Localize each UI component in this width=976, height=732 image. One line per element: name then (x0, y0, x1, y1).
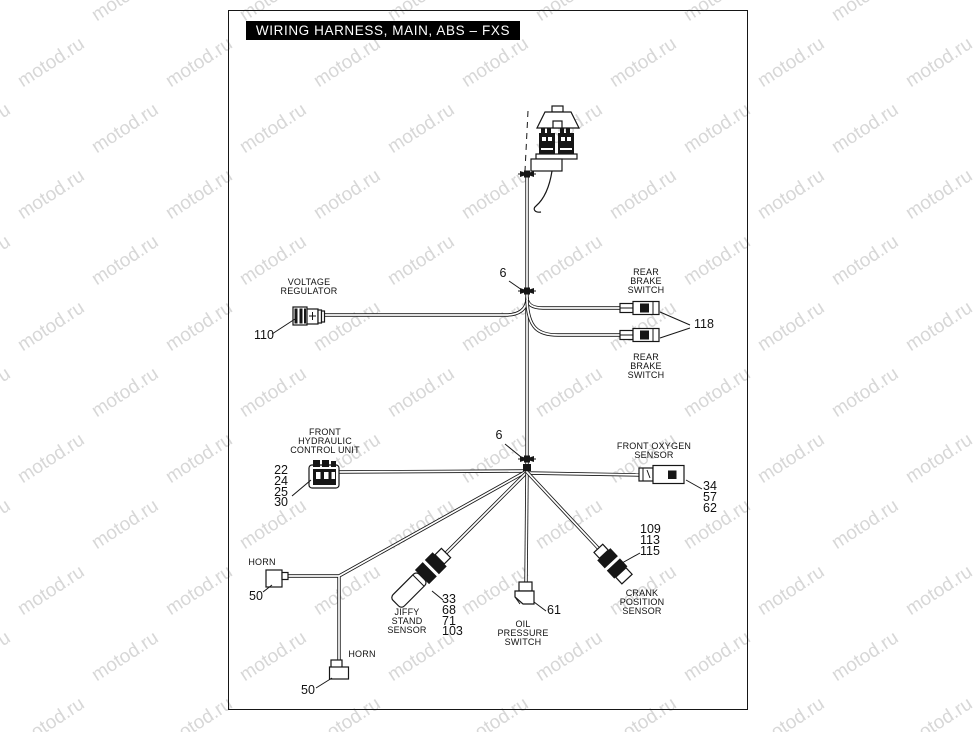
label-rear-brake-switch-top: REAR BRAKE SWITCH (586, 268, 706, 294)
callout-front-hydraulic-control-unit: 22 24 25 30 (256, 465, 288, 508)
cable-clamp-top (518, 171, 536, 178)
horn-lower-connector (330, 660, 349, 679)
callout-horn-lower: 50 (298, 685, 318, 696)
label-rear-brake-switch-bottom: REAR BRAKE SWITCH (586, 353, 706, 379)
label-voltage-regulator: VOLTAGE REGULATOR (239, 278, 379, 296)
callout-horn-upper: 50 (246, 591, 266, 602)
star-junction (523, 464, 531, 471)
rear-brake-switch-connector-top (620, 302, 659, 315)
rear-brake-switch-connector-bottom (620, 329, 659, 342)
callout-clamp-mid: 6 (492, 430, 506, 441)
callout-oil-pressure-switch: 61 (547, 605, 561, 616)
callout-jiffy-stand-sensor: 33 68 71 103 (442, 594, 463, 637)
horn-upper-connector (266, 570, 288, 587)
label-horn-lower: HORN (322, 650, 402, 659)
label-jiffy-stand-sensor: JIFFY STAND SENSOR (367, 608, 447, 634)
callout-voltage-regulator: 110 (246, 330, 282, 341)
harness-wires (285, 176, 641, 662)
label-front-oxygen-sensor: FRONT OXYGEN SENSOR (574, 442, 734, 460)
crank-position-sensor-connector (592, 542, 634, 585)
callout-front-oxygen-sensor: 34 57 62 (703, 481, 717, 513)
callout-rear-brake-switches: 118 (694, 319, 714, 330)
oxygen-sensor-connector (639, 466, 684, 484)
label-crank-position-sensor: CRANK POSITION SENSOR (602, 589, 682, 615)
parts-diagram-page: motod.rumotod.rumotod.rumotod.rumotod.ru… (0, 0, 976, 732)
label-horn-upper: HORN (222, 558, 302, 567)
fuse-relay-block (525, 106, 579, 212)
label-oil-pressure-switch: OIL PRESSURE SWITCH (483, 620, 563, 646)
callout-clamp-top: 6 (496, 268, 510, 279)
voltage-regulator-connector (293, 307, 325, 325)
hydraulic-control-unit-connector (309, 460, 339, 488)
diagram-title: WIRING HARNESS, MAIN, ABS – FXS (246, 21, 520, 40)
label-front-hydraulic-control-unit: FRONT HYDRAULIC CONTROL UNIT (245, 428, 405, 454)
callout-crank-position-sensor: 109 113 115 (640, 524, 661, 556)
oil-pressure-switch-connector (515, 582, 534, 604)
